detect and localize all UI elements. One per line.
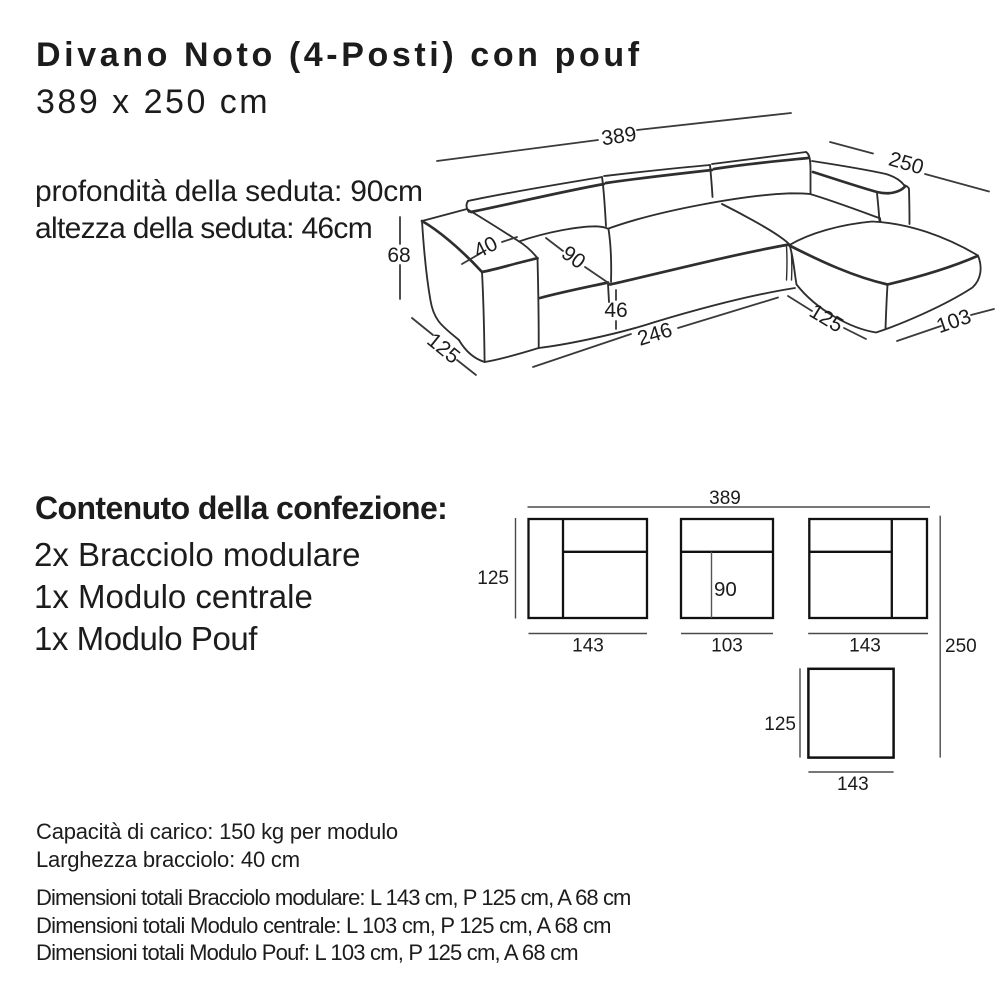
svg-text:143: 143 bbox=[572, 636, 604, 657]
svg-text:68: 68 bbox=[387, 244, 410, 267]
svg-text:143: 143 bbox=[849, 636, 881, 657]
svg-text:143: 143 bbox=[837, 774, 869, 795]
svg-text:40: 40 bbox=[470, 232, 501, 263]
svg-text:389: 389 bbox=[600, 123, 638, 151]
svg-text:125: 125 bbox=[477, 568, 509, 589]
svg-text:90: 90 bbox=[557, 241, 589, 273]
svg-text:389: 389 bbox=[709, 488, 741, 509]
svg-text:125: 125 bbox=[422, 329, 464, 369]
svg-text:250: 250 bbox=[886, 148, 926, 180]
svg-text:250: 250 bbox=[945, 636, 977, 657]
svg-text:246: 246 bbox=[635, 318, 675, 350]
svg-text:90: 90 bbox=[714, 578, 737, 601]
svg-text:103: 103 bbox=[711, 636, 743, 657]
svg-text:125: 125 bbox=[764, 714, 796, 735]
svg-text:103: 103 bbox=[934, 305, 975, 338]
svg-text:46: 46 bbox=[604, 299, 627, 322]
